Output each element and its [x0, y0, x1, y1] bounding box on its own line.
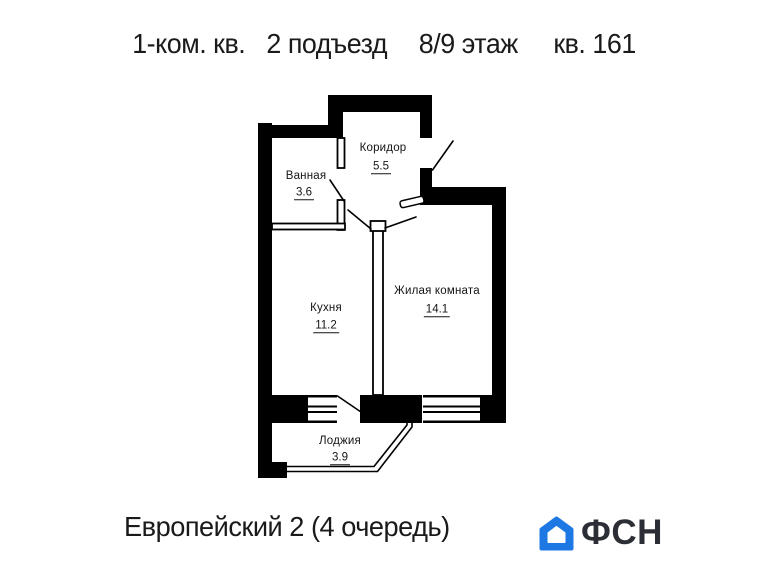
loggia-door-swing	[338, 396, 362, 412]
project-name: Европейский 2 (4 очередь)	[124, 511, 450, 543]
room-label-corridor: Коридор	[360, 142, 407, 154]
room-label-kitchen: Кухня	[310, 302, 342, 314]
room-label-living-room: Жилая комната	[394, 285, 480, 297]
entry-door-leaf	[400, 196, 425, 208]
room-area-bathroom: 3.6	[294, 186, 314, 200]
house-icon	[538, 515, 575, 552]
living-room-window	[423, 395, 480, 423]
room-area-loggia: 3.9	[330, 451, 350, 465]
room-label-bathroom: Ванная	[286, 170, 327, 182]
floor-plan-drawing	[0, 0, 768, 576]
logo-text: ФСН	[581, 514, 663, 552]
kitchen-window	[308, 395, 337, 423]
room-area-living-room: 14.1	[424, 303, 450, 317]
living-room-door-swing	[385, 217, 416, 228]
room-area-corridor: 5.5	[371, 160, 391, 174]
kitchen-door-swing	[348, 210, 371, 229]
room-area-kitchen: 11.2	[313, 319, 339, 333]
developer-logo: ФСН	[538, 514, 663, 552]
room-label-loggia: Лоджия	[319, 435, 361, 447]
door-swing-lines	[330, 141, 453, 412]
floorplan-page: 1-ком. кв. 2 подъезд 8/9 этаж кв. 161	[0, 0, 768, 576]
bathroom-door-swing	[330, 180, 344, 201]
entry-door-swing	[433, 141, 454, 170]
